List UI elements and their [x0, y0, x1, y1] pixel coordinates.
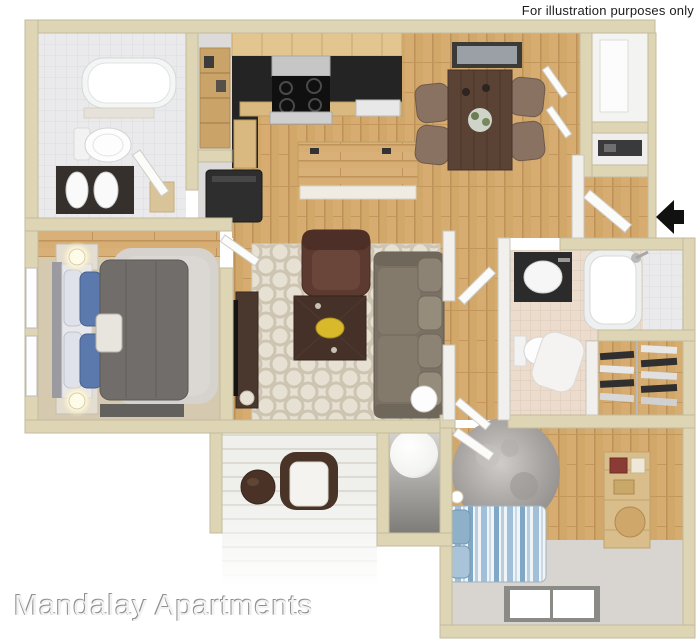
- range-hood: [272, 56, 330, 76]
- partition-hall-north: [443, 231, 455, 301]
- linen-closet: [200, 48, 230, 148]
- decor-bowl: [316, 318, 344, 338]
- water-heater: [390, 430, 438, 478]
- floor-plan-page: For illustration purposes only Mandalay …: [0, 0, 700, 642]
- oven-front: [270, 112, 332, 124]
- centerpiece-leaf-2: [482, 118, 490, 126]
- island-decor-2: [382, 148, 391, 154]
- wall-niche-south: [377, 533, 452, 546]
- wall-bedroom2-west: [440, 428, 452, 625]
- wall-east: [683, 238, 695, 638]
- wall-art: [457, 46, 517, 64]
- bed2-pillow-1: [450, 510, 470, 544]
- wall-north: [25, 20, 655, 33]
- sphere-lamp: [411, 386, 437, 412]
- sink-right: [94, 172, 118, 208]
- wall-closet-divider-2: [592, 165, 648, 177]
- refrigerator-top: [212, 176, 256, 182]
- partition-bath2-west: [498, 238, 510, 420]
- island-decor-1: [310, 148, 319, 154]
- desk-art-1: [610, 458, 627, 473]
- table-candle-2: [331, 347, 337, 353]
- wall-patio-west: [210, 433, 222, 533]
- dining-chair-4: [508, 120, 546, 161]
- wall-bath2-closet: [598, 330, 695, 341]
- wall-closet-divider-1: [592, 122, 648, 133]
- bathtub2-basin: [590, 256, 636, 324]
- dining-chair-3: [508, 76, 546, 117]
- nook-wall: [198, 150, 232, 162]
- desk-caddy: [614, 480, 634, 494]
- toilet-bowl: [85, 128, 131, 162]
- wall-bath1-south: [25, 218, 232, 231]
- sofa-seat-1: [378, 268, 420, 334]
- upper-cabinets: [232, 33, 402, 56]
- wall-closet-south-b: [508, 415, 695, 428]
- master-window-2: [26, 336, 37, 396]
- bedside-mat: [100, 404, 184, 417]
- table-lamp-2: [69, 393, 85, 409]
- wall-bath1-east: [186, 33, 198, 190]
- armchair-back: [302, 230, 370, 250]
- pillow-white-1: [64, 270, 82, 326]
- rug-texture-3: [501, 439, 519, 457]
- sink-left: [66, 172, 88, 208]
- coat-closet-door-panel: [600, 40, 628, 112]
- floor-plan-rendering: [0, 0, 700, 642]
- shelf-items-2: [216, 80, 226, 92]
- desk-stool: [615, 507, 645, 537]
- living-room: [232, 230, 444, 420]
- table-decor-1: [462, 88, 470, 96]
- console-decor: [240, 391, 254, 405]
- wall-master-east: [220, 268, 233, 420]
- wall-bedroom2-south: [440, 625, 695, 638]
- armchair-seat: [312, 250, 360, 290]
- shelf-items: [204, 56, 214, 68]
- pantry-item: [604, 144, 616, 152]
- partition-vestibule: [572, 155, 584, 238]
- tub-ledge: [84, 108, 154, 118]
- partition-closet-west: [586, 341, 598, 415]
- sofa-pillow-3: [418, 334, 442, 368]
- bed2-pillow-2: [450, 546, 470, 578]
- master-bedroom: [52, 241, 218, 417]
- wall-niche-west: [377, 433, 389, 533]
- accent-pillow: [96, 314, 122, 352]
- partition-hall-south: [443, 345, 455, 420]
- table-candle-1: [315, 303, 321, 309]
- table-lamp-1: [69, 249, 85, 265]
- patio-table-highlight: [247, 478, 259, 486]
- dishwasher: [356, 100, 400, 116]
- wall-entry-south: [560, 238, 695, 250]
- faucet2: [558, 258, 570, 262]
- entry-floor: [584, 177, 648, 238]
- dining-chair-2: [414, 124, 452, 165]
- rug-texture-2: [510, 472, 538, 500]
- patio-side-table: [241, 470, 275, 504]
- window2-mullion: [550, 590, 553, 618]
- wall-master-south: [25, 420, 455, 433]
- brand-text: Mandalay Apartments: [14, 590, 313, 623]
- lower-cabinet-left: [234, 120, 256, 168]
- pillow-white-2: [64, 332, 82, 388]
- entry-arrow-icon: [656, 200, 684, 234]
- island-side: [300, 186, 416, 199]
- headboard: [52, 262, 62, 398]
- desk-art-2: [631, 458, 645, 473]
- watermark-text: For illustration purposes only: [522, 3, 694, 18]
- bathtub-basin: [88, 63, 170, 103]
- sofa-pillow-2: [418, 296, 442, 330]
- wall-entry-east: [648, 33, 656, 250]
- utility-closet: [390, 430, 438, 478]
- centerpiece-leaf-1: [471, 112, 479, 120]
- shower-surround: [643, 250, 683, 330]
- dining-chair-1: [414, 82, 452, 123]
- bed2-lamp: [451, 491, 463, 503]
- sink2: [524, 261, 562, 293]
- sofa-pillow-1: [418, 258, 442, 292]
- patio-chair-cushion: [290, 462, 328, 506]
- master-window-1: [26, 268, 37, 328]
- table-decor-2: [482, 84, 490, 92]
